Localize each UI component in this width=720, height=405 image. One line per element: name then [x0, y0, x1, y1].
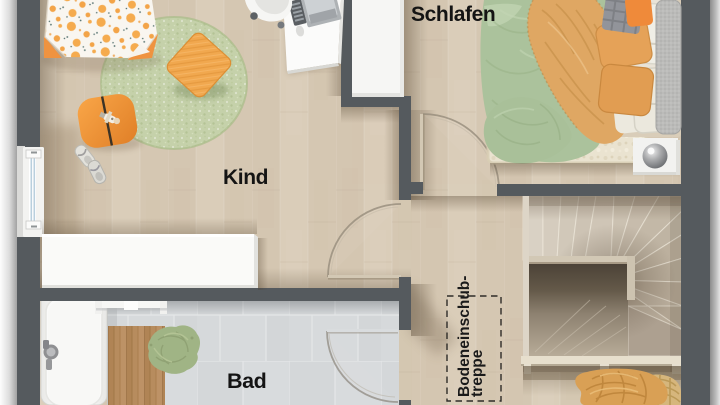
svg-text:Kind: Kind: [223, 166, 268, 189]
svg-text:Bad: Bad: [227, 369, 266, 393]
svg-text:treppe: treppe: [469, 349, 486, 397]
svg-text:Schlafen: Schlafen: [411, 3, 495, 26]
